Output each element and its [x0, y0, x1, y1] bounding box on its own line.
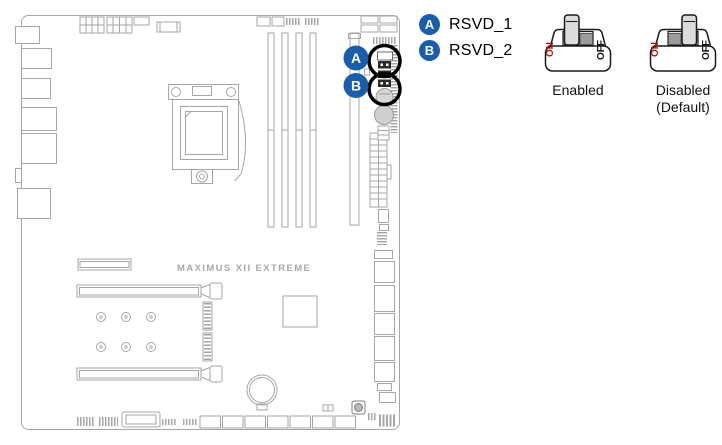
switch-state-enabled: ON OFF Enabled — [539, 12, 617, 83]
off-label: OFF — [701, 40, 712, 60]
rear-io-ports — [16, 27, 57, 219]
switch-lever — [565, 15, 580, 45]
legend-badge-a: A — [419, 14, 440, 35]
callout-b-letter: B — [351, 78, 361, 94]
disabled-label: Disabled (Default) — [644, 82, 722, 116]
switch-enabled-drawing: ON OFF — [539, 12, 617, 78]
disabled-label-line2: (Default) — [644, 99, 722, 116]
enabled-label: Enabled — [539, 82, 617, 99]
switch-state-disabled: ON OFF Disabled (Default) — [644, 12, 722, 83]
switch-slot-filler — [669, 34, 682, 45]
switch-lever — [682, 15, 697, 45]
legend-item-rsvd2: B RSVD_2 — [419, 40, 512, 61]
board-brand-label: MAXIMUS XII EXTREME — [177, 263, 311, 274]
disabled-label-line1: Disabled — [644, 82, 722, 99]
switch-disabled-drawing: ON OFF — [644, 12, 722, 78]
on-label: ON — [545, 42, 556, 57]
manual-figure: e — [0, 0, 722, 445]
off-label: OFF — [596, 40, 607, 60]
on-label: ON — [650, 42, 661, 57]
switch-slot-filler — [580, 34, 593, 45]
motherboard-diagram: MAXIMUS XII EXTREME — [0, 0, 410, 445]
legend-badge-b: B — [419, 40, 440, 61]
legend-item-rsvd1: A RSVD_1 — [419, 14, 512, 35]
callout-a-letter: A — [351, 50, 361, 66]
legend-label-rsvd2: RSVD_2 — [449, 42, 512, 60]
legend: A RSVD_1 B RSVD_2 — [419, 14, 512, 66]
legend-label-rsvd1: RSVD_1 — [449, 16, 512, 34]
